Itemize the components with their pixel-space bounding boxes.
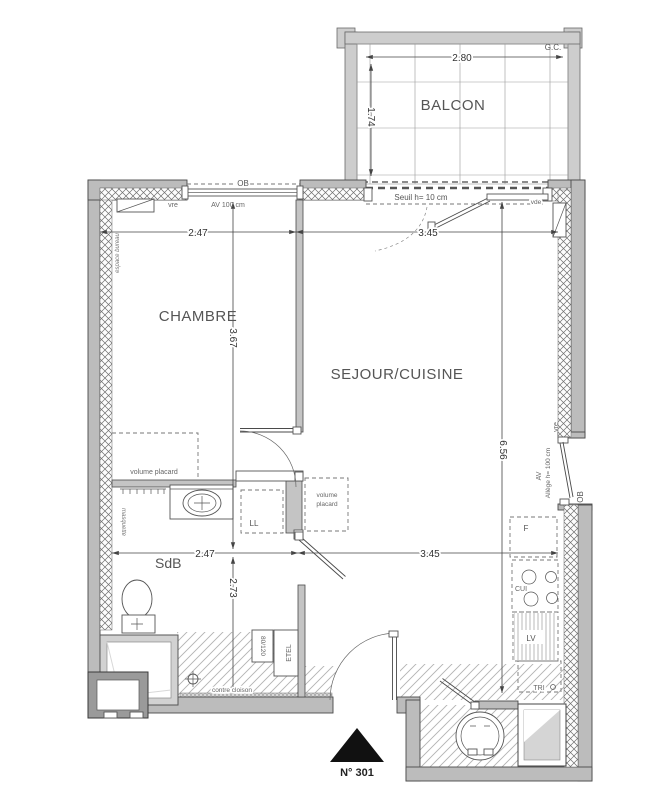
espace-bureau-label: espace bureau — [115, 232, 121, 272]
entrance-swing-clear — [330, 633, 397, 700]
floorplan-page: BALCON G.C. 2.80 1.74 OB vre AV 100 cm S… — [0, 0, 649, 800]
wall-technical-stub — [475, 701, 518, 709]
dim-bedroom-length-label: 3.67 — [227, 328, 238, 348]
hall-door — [295, 532, 346, 579]
etel-label: ETEL — [286, 644, 293, 662]
insulation-top-mid — [300, 188, 366, 200]
water-heater — [456, 712, 504, 760]
floorplan-canvas: BALCON G.C. 2.80 1.74 OB vre AV 100 cm S… — [0, 0, 649, 800]
dim-bath-length-label: 2.73 — [227, 578, 238, 598]
insulation-top-left — [100, 188, 187, 200]
dim-balcony-depth-label: 1.74 — [365, 107, 376, 127]
shower-size-label: 80/120 — [259, 636, 266, 656]
gc-label: G.C. — [545, 43, 561, 52]
seuil-label: Seuil h= 10 cm — [394, 193, 447, 202]
balcony-tile-grid — [357, 44, 568, 184]
dim-living-width-label: 3.45 — [418, 228, 438, 239]
partition-hall-living — [298, 585, 305, 697]
tri-label: TRI — [533, 685, 544, 692]
washer-label: LL — [250, 519, 259, 528]
bedroom-window-jamb-left — [182, 186, 188, 199]
ob-right-label: OB — [576, 491, 585, 503]
masquette-label: masquette — [120, 508, 126, 537]
dim-bedroom-width-label: 2.47 — [188, 228, 208, 239]
toilet — [122, 580, 155, 633]
balcony-door-jamb-left — [364, 188, 372, 201]
dim-living-length-label: 6.56 — [497, 440, 508, 460]
cooktop-label: CUI — [515, 586, 527, 593]
vanity — [170, 485, 233, 519]
living-window-right — [558, 437, 573, 505]
closet-volume-2-label-line1: volume — [317, 492, 338, 499]
ob-top-label: OB — [237, 179, 249, 188]
cased-opening-head — [236, 471, 303, 481]
dishwasher-label: LV — [526, 634, 536, 643]
bathroom-label: SdB — [155, 555, 181, 571]
balcony-rail-right — [568, 32, 580, 184]
dim-hall-width-label: 3.45 — [420, 549, 440, 560]
entry-floor-hatch-right — [400, 664, 565, 700]
vre-right-label: vre — [553, 422, 560, 432]
dim-bath-width-label: 2.47 — [195, 549, 215, 560]
technical-shaft — [518, 704, 566, 766]
insulation-left — [100, 188, 112, 630]
balcony-label: BALCON — [421, 97, 486, 114]
balcony-rail-left — [345, 32, 357, 184]
radiator-bedroom — [117, 199, 154, 212]
av-right-label: AV — [536, 471, 543, 480]
fridge-zone — [510, 517, 557, 557]
closet-volume-2-label-line2: placard — [316, 501, 338, 508]
allege-right-label: Allège h= 100 cm — [545, 448, 552, 498]
towel-rail — [120, 489, 166, 494]
wall-left — [88, 180, 100, 713]
jamb-block-top — [295, 472, 303, 481]
duct-shaft — [88, 672, 148, 718]
washer-zone — [241, 490, 283, 533]
vde-label: vde — [531, 199, 542, 206]
partition-bedroom-living — [296, 200, 303, 432]
wardrobe-block — [286, 481, 302, 533]
vre-top-label: vre — [168, 202, 178, 209]
living-label: SEJOUR/CUISINE — [331, 366, 464, 383]
cooktop-burners — [522, 570, 558, 606]
fridge-label: F — [524, 524, 529, 533]
entrance-marker-triangle — [330, 728, 384, 762]
bedroom-label: CHAMBRE — [159, 308, 238, 325]
av-top-label: AV 100 cm — [211, 202, 245, 209]
wall-technical-bottom — [406, 767, 592, 781]
contre-cloison-label: contre cloison — [212, 687, 252, 694]
closet-volume-1-label: volume placard — [130, 469, 178, 476]
wall-right-upper — [571, 180, 585, 438]
unit-number-label: N° 301 — [340, 767, 374, 779]
wall-right-lower — [578, 505, 592, 781]
dim-balcony-width-label: 2.80 — [452, 53, 472, 64]
bedroom-window-jamb-right — [297, 186, 303, 199]
